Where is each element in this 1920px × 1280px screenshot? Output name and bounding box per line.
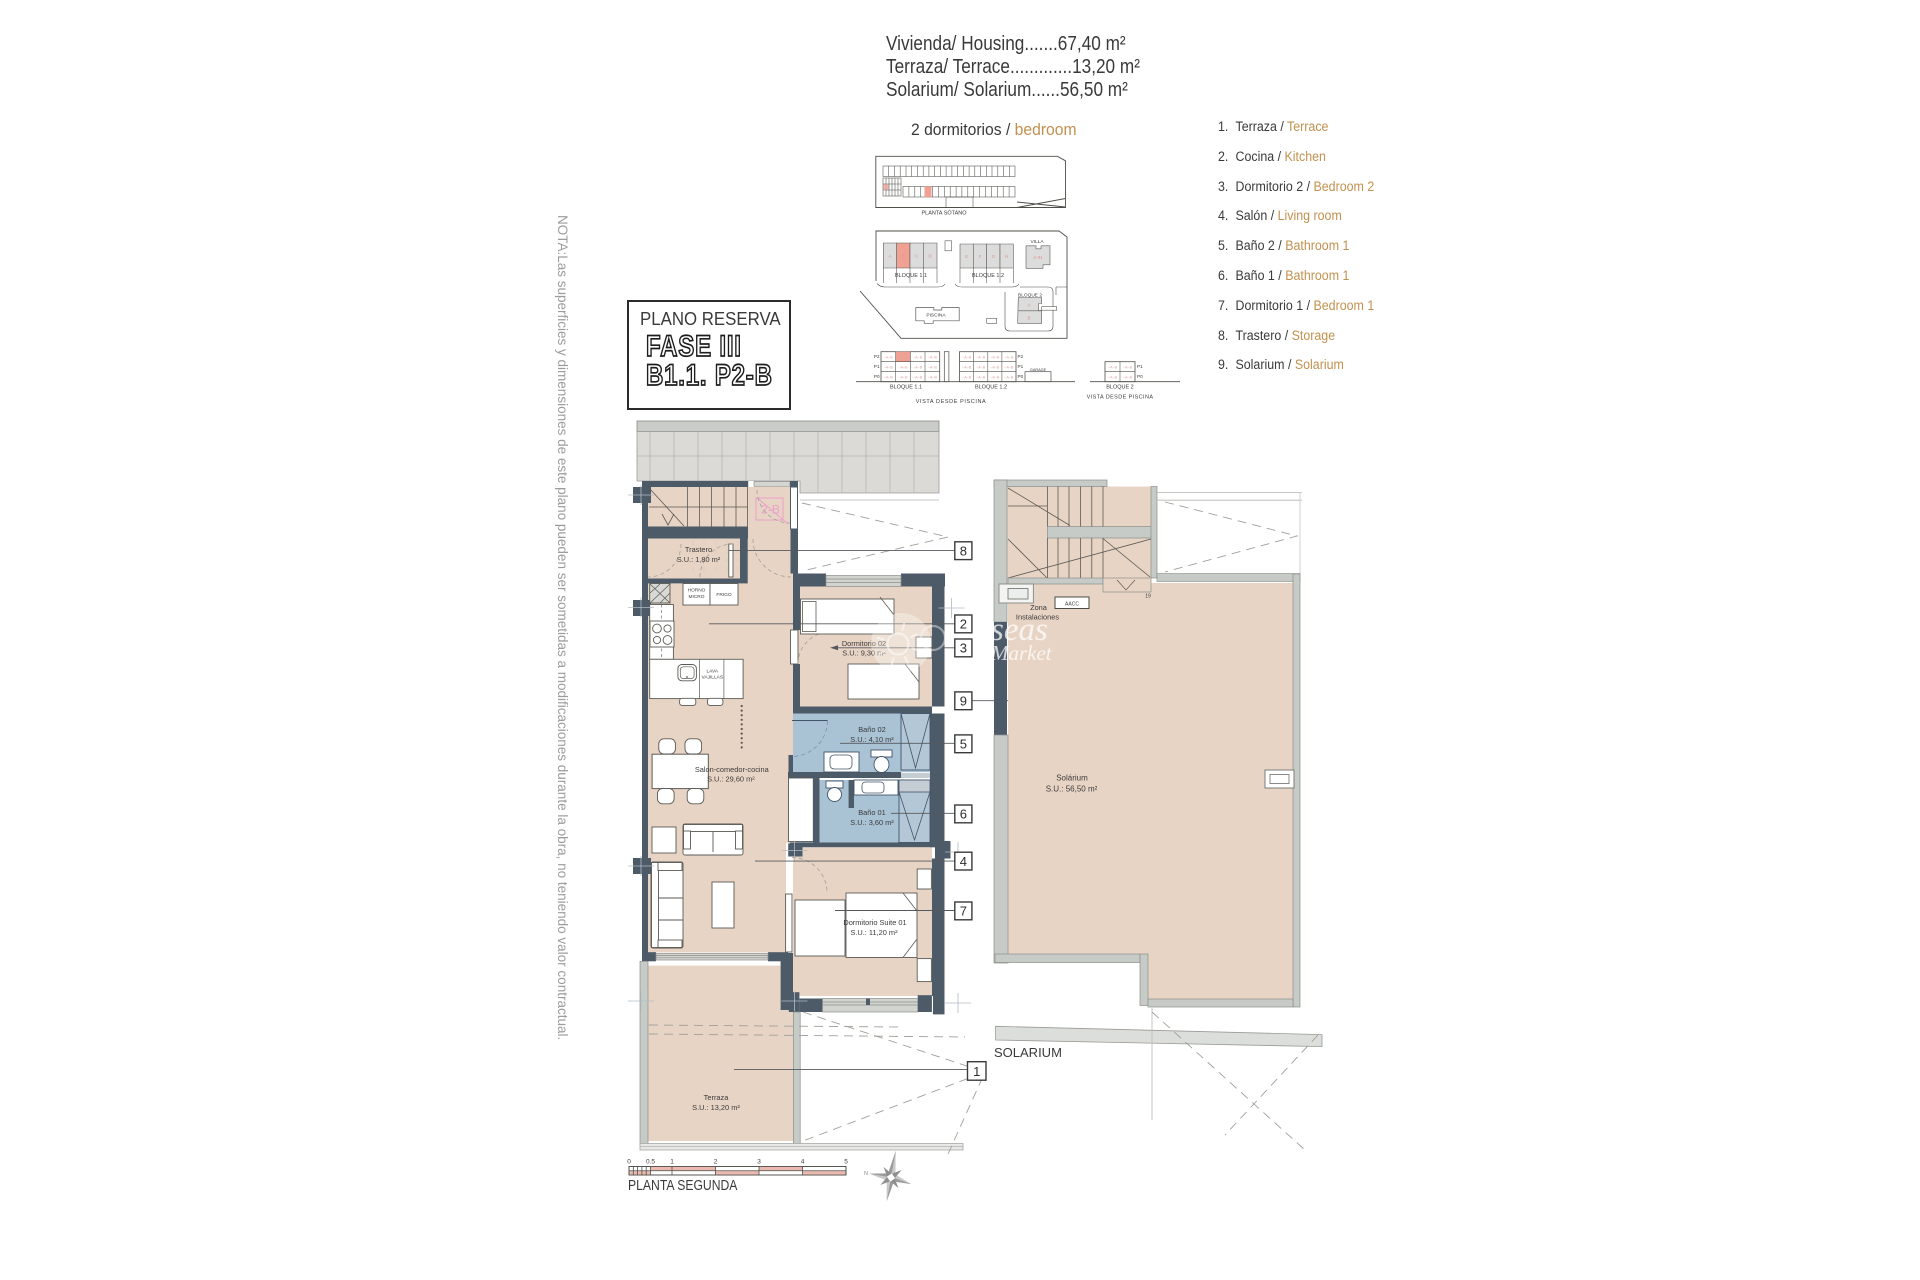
svg-text:~A~B: ~A~B bbox=[1004, 375, 1014, 379]
svg-text:B: B bbox=[1027, 316, 1030, 321]
svg-text:BLOQUE 1.1: BLOQUE 1.1 bbox=[895, 273, 927, 279]
svg-text:PLANTA SÓTANO: PLANTA SÓTANO bbox=[921, 210, 967, 217]
svg-text:6: 6 bbox=[960, 807, 967, 822]
svg-text:P0: P0 bbox=[1018, 374, 1024, 379]
svg-text:LAVA: LAVA bbox=[707, 669, 719, 675]
svg-text:Dormitorio Suite 01: Dormitorio Suite 01 bbox=[843, 918, 906, 927]
svg-text:~A~B: ~A~B bbox=[1108, 365, 1118, 369]
svg-text:5: 5 bbox=[844, 1159, 848, 1166]
svg-text:~A~B: ~A~B bbox=[928, 355, 938, 359]
svg-text:3: 3 bbox=[757, 1159, 761, 1166]
svg-text:BLOQUE 1.2: BLOQUE 1.2 bbox=[972, 273, 1004, 279]
svg-text:VAJILLAS: VAJILLAS bbox=[702, 675, 724, 681]
svg-text:B: B bbox=[902, 254, 905, 259]
svg-text:~A~B: ~A~B bbox=[899, 365, 909, 369]
svg-text:9: 9 bbox=[960, 694, 967, 709]
svg-text:VISTA DESDE PISCINA: VISTA DESDE PISCINA bbox=[916, 399, 987, 405]
svg-text:1: 1 bbox=[973, 1064, 980, 1079]
svg-text:P1: P1 bbox=[874, 364, 880, 369]
svg-text:~A~B: ~A~B bbox=[899, 355, 909, 359]
svg-text:GARAGE: GARAGE bbox=[1030, 368, 1047, 372]
svg-text:VISTA DESDE PISCINA: VISTA DESDE PISCINA bbox=[1087, 395, 1154, 401]
svg-text:A: A bbox=[1027, 303, 1030, 308]
svg-text:~A~B: ~A~B bbox=[928, 375, 938, 379]
svg-text:FRIGO: FRIGO bbox=[716, 592, 731, 598]
svg-text:E: E bbox=[965, 254, 968, 259]
svg-text:S.U.: 1,80 m²: S.U.: 1,80 m² bbox=[677, 555, 721, 564]
svg-text:~A~B: ~A~B bbox=[990, 365, 1000, 369]
svg-text:Baño 02: Baño 02 bbox=[858, 725, 886, 734]
svg-text:4: 4 bbox=[801, 1159, 805, 1166]
svg-text:P1: P1 bbox=[1018, 364, 1024, 369]
svg-text:HORNO: HORNO bbox=[688, 588, 706, 594]
svg-text:~A~B: ~A~B bbox=[913, 365, 923, 369]
svg-text:S.U.: 29,60 m²: S.U.: 29,60 m² bbox=[707, 775, 755, 784]
svg-text:Salon-comedor-cocina: Salon-comedor-cocina bbox=[695, 765, 770, 774]
svg-text:Trastero: Trastero bbox=[685, 545, 712, 554]
svg-text:S.U.: 56,50 m²: S.U.: 56,50 m² bbox=[1046, 785, 1098, 794]
svg-text:~A~B: ~A~B bbox=[990, 375, 1000, 379]
svg-text:BLOQUE 2: BLOQUE 2 bbox=[1106, 385, 1134, 391]
svg-text:S.U.: 11,20 m²: S.U.: 11,20 m² bbox=[850, 928, 898, 937]
svg-text:19: 19 bbox=[1145, 594, 1151, 600]
svg-text:Market: Market bbox=[990, 641, 1053, 665]
svg-text:~A~B: ~A~B bbox=[976, 355, 986, 359]
svg-text:1: 1 bbox=[670, 1159, 674, 1166]
svg-text:3: 3 bbox=[960, 641, 967, 656]
svg-text:~A~B: ~A~B bbox=[913, 355, 923, 359]
svg-text:~A~B: ~A~B bbox=[976, 375, 986, 379]
svg-text:Zona: Zona bbox=[1030, 603, 1048, 612]
svg-text:~A~B: ~A~B bbox=[976, 365, 986, 369]
svg-text:S.U.: 4,10 m²: S.U.: 4,10 m² bbox=[850, 735, 894, 744]
svg-text:S.U.: 13,20 m²: S.U.: 13,20 m² bbox=[692, 1103, 740, 1112]
svg-text:~A~B: ~A~B bbox=[990, 355, 1000, 359]
svg-text:F: F bbox=[979, 254, 982, 259]
svg-text:0: 0 bbox=[627, 1159, 631, 1166]
svg-text:~A~B: ~A~B bbox=[1123, 365, 1133, 369]
svg-text:~A~B: ~A~B bbox=[962, 365, 972, 369]
svg-text:7: 7 bbox=[960, 904, 967, 919]
svg-text:~A~B: ~A~B bbox=[962, 375, 972, 379]
svg-text:AACC: AACC bbox=[1065, 602, 1079, 608]
svg-text:A-01: A-01 bbox=[1033, 255, 1043, 260]
svg-text:Terraza: Terraza bbox=[704, 1093, 730, 1102]
svg-text:~A~B: ~A~B bbox=[962, 355, 972, 359]
svg-text:~A~B: ~A~B bbox=[913, 375, 923, 379]
svg-text:~A~B: ~A~B bbox=[928, 365, 938, 369]
svg-text:8: 8 bbox=[960, 543, 967, 558]
svg-text:VILLA: VILLA bbox=[1030, 239, 1044, 245]
svg-text:~A~B: ~A~B bbox=[884, 375, 894, 379]
svg-text:N: N bbox=[864, 1171, 868, 1177]
svg-text:2: 2 bbox=[960, 617, 967, 632]
svg-text:BLOQUE 1.2: BLOQUE 1.2 bbox=[975, 385, 1007, 391]
svg-text:S.U.: 3,60 m²: S.U.: 3,60 m² bbox=[850, 818, 894, 827]
svg-text:~A~B: ~A~B bbox=[884, 365, 894, 369]
svg-text:~A~B: ~A~B bbox=[1004, 355, 1014, 359]
svg-text:Solárium: Solárium bbox=[1056, 774, 1088, 783]
svg-text:P2: P2 bbox=[1018, 354, 1024, 359]
svg-text:MICRO: MICRO bbox=[689, 594, 705, 600]
svg-text:~A~B: ~A~B bbox=[1123, 375, 1133, 379]
svg-text:P1: P1 bbox=[1137, 364, 1143, 369]
svg-text:P2: P2 bbox=[874, 354, 880, 359]
svg-text:2: 2 bbox=[714, 1159, 718, 1166]
svg-text:P0: P0 bbox=[1137, 374, 1143, 379]
svg-text:A: A bbox=[888, 254, 891, 259]
svg-text:BLOQUE 1.1: BLOQUE 1.1 bbox=[890, 385, 922, 391]
svg-text:Baño 01: Baño 01 bbox=[858, 808, 886, 817]
svg-text:5: 5 bbox=[960, 737, 967, 752]
svg-text:H: H bbox=[1005, 254, 1008, 259]
svg-text:~A~B: ~A~B bbox=[1108, 375, 1118, 379]
svg-text:4: 4 bbox=[960, 854, 967, 869]
svg-text:PISCINA: PISCINA bbox=[926, 313, 946, 319]
svg-text:0.5: 0.5 bbox=[646, 1159, 655, 1166]
svg-text:P0: P0 bbox=[874, 374, 880, 379]
svg-text:~A~B: ~A~B bbox=[899, 375, 909, 379]
svg-text:~A~B: ~A~B bbox=[1004, 365, 1014, 369]
svg-text:~A~B: ~A~B bbox=[884, 355, 894, 359]
svg-text:G: G bbox=[992, 254, 996, 259]
